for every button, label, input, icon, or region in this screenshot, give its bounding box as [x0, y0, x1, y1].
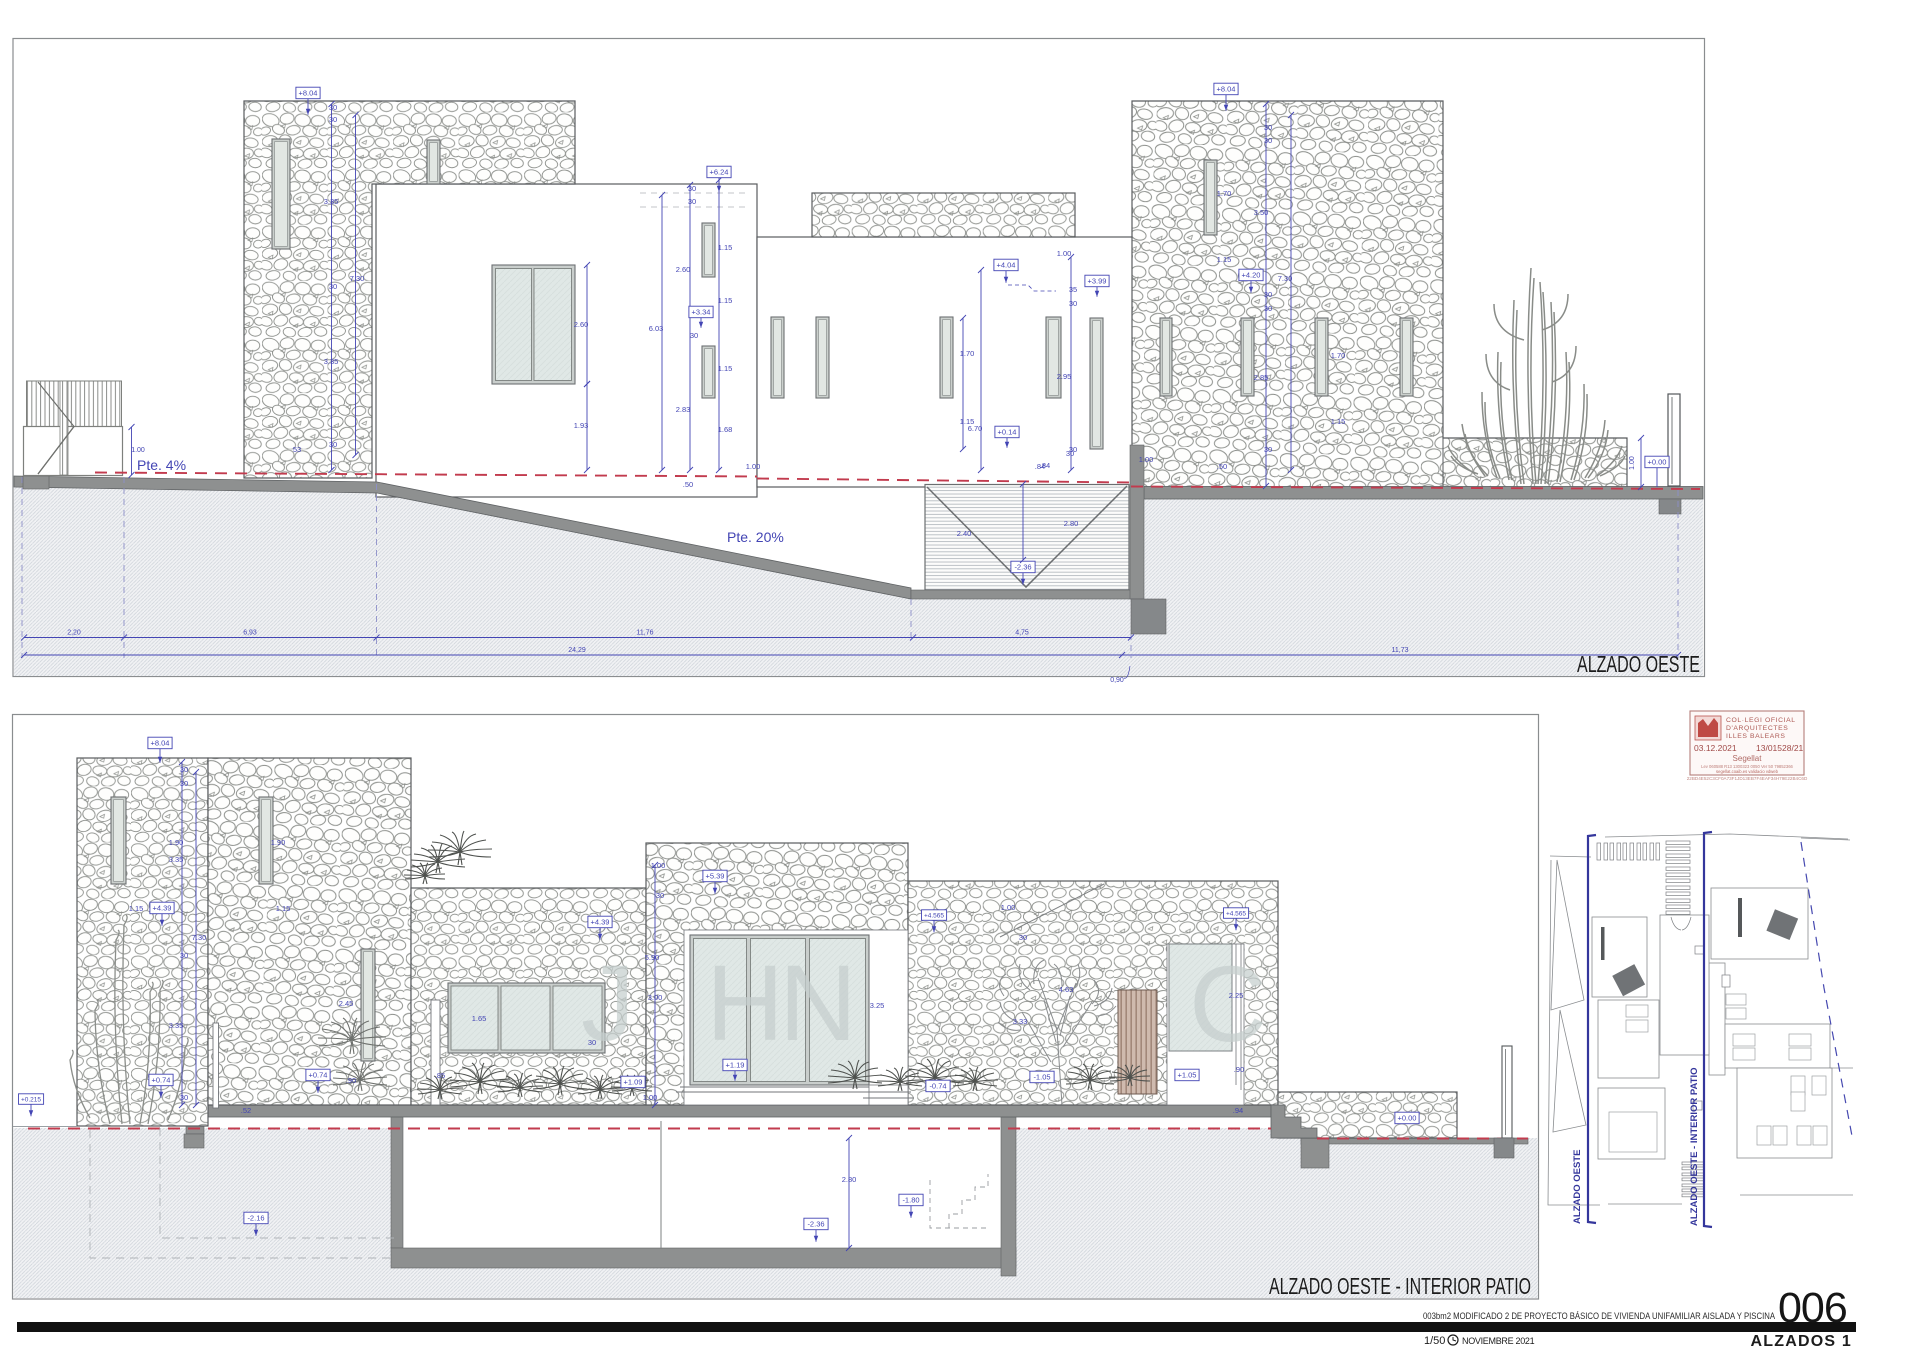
svg-text:7.30: 7.30: [1278, 274, 1293, 283]
svg-text:5.90: 5.90: [645, 953, 660, 962]
svg-text:C: C: [1189, 943, 1267, 1064]
svg-text:.90: .90: [1234, 1065, 1244, 1074]
svg-text:1.70: 1.70: [1217, 189, 1232, 198]
svg-text:+0.14: +0.14: [998, 428, 1017, 437]
svg-text:+3.34: +3.34: [692, 308, 711, 317]
svg-text:1.15: 1.15: [1217, 255, 1232, 264]
svg-text:+6.24: +6.24: [710, 168, 729, 177]
svg-text:3.35: 3.35: [169, 855, 184, 864]
svg-text:+1.19: +1.19: [726, 1061, 745, 1070]
svg-text:Pte. 4%: Pte. 4%: [137, 457, 186, 473]
svg-text:-2.36: -2.36: [807, 1220, 824, 1229]
svg-text:1.15: 1.15: [718, 364, 733, 373]
svg-text:53: 53: [293, 445, 301, 454]
svg-text:+5.39: +5.39: [706, 872, 725, 881]
svg-text:Segellat: Segellat: [1733, 754, 1763, 763]
svg-text:D'ARQUITECTES: D'ARQUITECTES: [1726, 725, 1788, 732]
svg-text:30: 30: [329, 115, 337, 124]
svg-text:1.00: 1.00: [643, 1093, 658, 1102]
svg-text:-1.80: -1.80: [902, 1196, 919, 1205]
svg-text:Pte. 20%: Pte. 20%: [727, 529, 784, 545]
svg-text:.50: .50: [1217, 462, 1227, 471]
svg-text:2.60: 2.60: [676, 265, 691, 274]
svg-text:30: 30: [688, 184, 696, 193]
svg-text:+8.04: +8.04: [151, 739, 170, 748]
svg-text:1.00: 1.00: [651, 861, 666, 870]
svg-text:13/01528/21: 13/01528/21: [1756, 743, 1804, 753]
svg-text:30: 30: [1264, 445, 1272, 454]
svg-text:2.40: 2.40: [957, 529, 972, 538]
svg-text:1.00: 1.00: [1001, 903, 1016, 912]
svg-text:ILLES BALEARS: ILLES BALEARS: [1726, 733, 1786, 740]
svg-text:+0.74: +0.74: [309, 1071, 328, 1080]
svg-text:+1.05: +1.05: [1178, 1071, 1197, 1080]
svg-text:30: 30: [1264, 304, 1272, 313]
svg-text:+0.00: +0.00: [1398, 1114, 1417, 1123]
svg-text:1.00: 1.00: [1139, 455, 1154, 464]
svg-text:0,90: 0,90: [1110, 677, 1124, 684]
svg-text:ALZADO OESTE: ALZADO OESTE: [1572, 1150, 1583, 1224]
svg-text:30: 30: [180, 1093, 188, 1102]
svg-text:+4.20: +4.20: [1242, 271, 1261, 280]
svg-text:2.83: 2.83: [676, 405, 691, 414]
svg-text:2.25: 2.25: [1229, 991, 1244, 1000]
svg-text:+0.00: +0.00: [1648, 458, 1667, 467]
svg-text:1.00: 1.00: [746, 462, 761, 471]
svg-text:30: 30: [688, 197, 696, 206]
svg-text:.90: .90: [346, 1076, 356, 1085]
svg-text:.84: .84: [1040, 461, 1050, 470]
svg-text:1.93: 1.93: [574, 421, 589, 430]
svg-text:4.63: 4.63: [1059, 985, 1074, 994]
svg-text:30: 30: [690, 331, 698, 340]
svg-text:1.68: 1.68: [718, 425, 733, 434]
svg-text:30: 30: [1019, 933, 1027, 942]
svg-text:1.70: 1.70: [1331, 351, 1346, 360]
svg-text:2.80: 2.80: [842, 1175, 857, 1184]
svg-text:COL·LEGI OFICIAL: COL·LEGI OFICIAL: [1726, 717, 1796, 724]
svg-text:3.50: 3.50: [1254, 208, 1269, 217]
svg-text:+4.565: +4.565: [1226, 910, 1246, 917]
svg-text:-2.16: -2.16: [247, 1214, 264, 1223]
svg-text:24,29: 24,29: [568, 647, 586, 654]
svg-text:3.35: 3.35: [324, 357, 339, 366]
svg-text:11,76: 11,76: [637, 630, 654, 637]
svg-text:003bm2 MODIFICADO 2 DE PROYE: 003bm2 MODIFICADO 2 DE PROYECTO BÁSICO D…: [1423, 1311, 1776, 1322]
svg-text:+8.04: +8.04: [299, 89, 318, 98]
svg-text:7.30: 7.30: [350, 274, 365, 283]
svg-text:1.15: 1.15: [129, 904, 144, 913]
svg-text:N: N: [779, 942, 857, 1063]
svg-text:6.03: 6.03: [649, 324, 664, 333]
svg-text:1.15: 1.15: [718, 243, 733, 252]
svg-text:NOVIEMBRE 2021: NOVIEMBRE 2021: [1462, 1336, 1535, 1346]
svg-text:ALZADO OESTE: ALZADO OESTE: [1577, 651, 1700, 677]
svg-text:30: 30: [180, 951, 188, 960]
svg-text:+1.09: +1.09: [624, 1078, 643, 1087]
svg-text:+8.04: +8.04: [1217, 85, 1236, 94]
svg-text:3.25: 3.25: [870, 1001, 885, 1010]
svg-text:.52: .52: [241, 1106, 251, 1115]
svg-text:2.60: 2.60: [574, 320, 589, 329]
svg-text:30: 30: [1264, 123, 1272, 132]
svg-text:30: 30: [656, 891, 664, 900]
svg-text:1.90: 1.90: [169, 838, 184, 847]
svg-text:H: H: [706, 942, 784, 1063]
svg-text:.85: .85: [435, 1071, 445, 1080]
svg-text:30: 30: [1264, 290, 1272, 299]
svg-text:30: 30: [329, 103, 337, 112]
svg-text:30: 30: [1069, 299, 1077, 308]
svg-text:-1.05: -1.05: [1033, 1073, 1050, 1082]
svg-text:1.15: 1.15: [718, 296, 733, 305]
svg-text:4,75: 4,75: [1015, 630, 1029, 637]
svg-text:1.15: 1.15: [1331, 417, 1346, 426]
svg-text:1.65: 1.65: [472, 1014, 487, 1023]
svg-text:.50: .50: [683, 480, 693, 489]
svg-text:2.85: 2.85: [1254, 373, 1269, 382]
svg-text:1.15: 1.15: [276, 904, 291, 913]
svg-text:ALZADOS 1: ALZADOS 1: [1751, 1333, 1852, 1350]
svg-text:+4.39: +4.39: [591, 918, 610, 927]
svg-text:+4.39: +4.39: [153, 904, 172, 913]
svg-text:.94: .94: [1233, 1106, 1243, 1115]
svg-text:2.80: 2.80: [1064, 519, 1079, 528]
svg-text:30: 30: [1264, 136, 1272, 145]
svg-text:3.00: 3.00: [648, 993, 663, 1002]
svg-text:3.35: 3.35: [169, 1021, 184, 1030]
svg-text:2.95: 2.95: [1057, 372, 1072, 381]
svg-text:3.33: 3.33: [1013, 1017, 1028, 1026]
svg-text:+0.74: +0.74: [152, 1076, 171, 1085]
svg-text:2,20: 2,20: [67, 630, 81, 637]
svg-text:1.00: 1.00: [1057, 249, 1072, 258]
svg-text:+3.99: +3.99: [1088, 277, 1107, 286]
svg-text:segellat.coaib.es validacio v: segellat.coaib.es validacio vdweb: [1716, 769, 1779, 774]
svg-text:1.00: 1.00: [131, 447, 145, 454]
svg-text:30: 30: [329, 440, 337, 449]
svg-text:11,73: 11,73: [1392, 647, 1409, 654]
svg-text:1.15: 1.15: [960, 417, 975, 426]
svg-text:+4.04: +4.04: [997, 261, 1016, 270]
svg-text:ALZADO OESTE - INTERIOR PATIO: ALZADO OESTE - INTERIOR PATIO: [1689, 1067, 1700, 1226]
svg-text:7.30: 7.30: [192, 933, 207, 942]
svg-text:1.70: 1.70: [960, 349, 975, 358]
svg-text:03.12.2021: 03.12.2021: [1694, 743, 1737, 753]
svg-text:1.90: 1.90: [271, 838, 286, 847]
svg-text:+0.215: +0.215: [21, 1096, 41, 1103]
svg-text:2.45: 2.45: [339, 999, 354, 1008]
svg-text:35: 35: [1069, 285, 1077, 294]
svg-text:ALZADO OESTE - INTERIOR PATIO: ALZADO OESTE - INTERIOR PATIO: [1269, 1273, 1531, 1299]
svg-text:1.00: 1.00: [1629, 456, 1636, 470]
svg-text:22BD4E52C3CF0A73F1JD13EB7F4EAF: 22BD4E52C3CF0A73F1JD13EB7F4EAF34H79E22B4…: [1687, 776, 1808, 781]
svg-text:1/50: 1/50: [1424, 1335, 1445, 1347]
svg-text:30: 30: [1066, 449, 1074, 458]
svg-text:30: 30: [180, 779, 188, 788]
svg-text:30: 30: [588, 1038, 596, 1047]
svg-text:-2.36: -2.36: [1014, 563, 1031, 572]
svg-text:-0.74: -0.74: [929, 1082, 946, 1091]
svg-text:+4.565: +4.565: [924, 912, 944, 919]
svg-text:3.35: 3.35: [324, 197, 339, 206]
svg-text:6,93: 6,93: [243, 630, 257, 637]
svg-text:006: 006: [1778, 1284, 1847, 1332]
svg-text:30: 30: [180, 765, 188, 774]
svg-text:30: 30: [329, 282, 337, 291]
